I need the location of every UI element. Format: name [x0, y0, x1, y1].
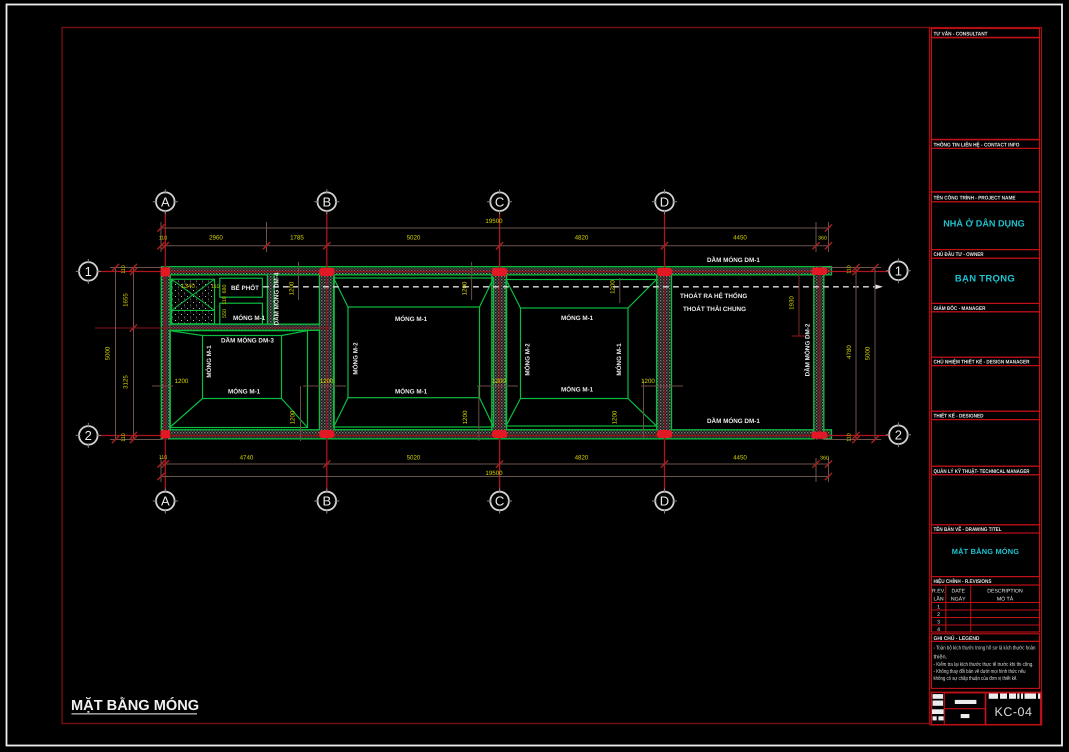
svg-text:110: 110	[211, 284, 220, 290]
svg-text:1200: 1200	[610, 280, 617, 294]
svg-text:TÊN CÔNG TRÌNH - PROJECT NAME: TÊN CÔNG TRÌNH - PROJECT NAME	[934, 195, 1016, 202]
svg-text:CHỦ ĐẦU TƯ - OWNER: CHỦ ĐẦU TƯ - OWNER	[934, 251, 984, 258]
svg-text:- Toàn bộ kích thước trong hồ: - Toàn bộ kích thước trong hồ sơ là kích…	[934, 645, 1036, 652]
svg-text:1200: 1200	[462, 281, 469, 295]
svg-text:19500: 19500	[485, 218, 503, 225]
svg-text:R.EV.: R.EV.	[932, 589, 945, 595]
svg-text:1200: 1200	[175, 378, 189, 385]
svg-text:MÓNG M-1: MÓNG M-1	[561, 314, 594, 322]
svg-text:BỂ PHỐT: BỂ PHỐT	[231, 284, 259, 292]
svg-text:110: 110	[121, 433, 127, 442]
svg-text:MẶT BẰNG MÓNG: MẶT BẰNG MÓNG	[71, 696, 199, 714]
svg-text:MÓNG M-1: MÓNG M-1	[228, 388, 261, 396]
svg-text:1655: 1655	[123, 293, 130, 307]
svg-text:TÊN BẢN VẼ - DRAWING TITEL: TÊN BẢN VẼ - DRAWING TITEL	[934, 526, 1003, 533]
svg-text:A: A	[161, 194, 170, 209]
svg-text:5000: 5000	[865, 346, 872, 360]
svg-text:4450: 4450	[733, 455, 747, 462]
svg-text:C: C	[495, 494, 504, 509]
svg-text:110: 110	[121, 265, 127, 274]
svg-text:1200: 1200	[641, 378, 655, 385]
svg-text:4740: 4740	[240, 455, 254, 462]
svg-text:DESCRIPTION: DESCRIPTION	[987, 589, 1023, 595]
svg-text:4450: 4450	[733, 234, 747, 241]
svg-text:1200: 1200	[612, 410, 619, 424]
svg-text:2: 2	[937, 612, 940, 618]
svg-text:110: 110	[847, 433, 853, 442]
svg-text:1340: 1340	[181, 283, 195, 290]
svg-text:1930: 1930	[789, 296, 796, 310]
svg-text:1785: 1785	[290, 234, 304, 241]
svg-text:- Không thay đổi bản vẽ dưới m: - Không thay đổi bản vẽ dưới mọi hình th…	[934, 668, 1026, 675]
svg-text:THIẾT KẾ - DESIGNED: THIẾT KẾ - DESIGNED	[934, 413, 984, 420]
svg-text:NGÀY: NGÀY	[951, 596, 966, 603]
svg-text:DẦM MÓNG DM-4: DẦM MÓNG DM-4	[273, 272, 281, 325]
svg-text:DẦM MÓNG DM-1: DẦM MÓNG DM-1	[707, 417, 760, 425]
svg-text:DẦM MÓNG DM-3: DẦM MÓNG DM-3	[221, 337, 274, 345]
svg-text:CHỦ NHIỆM THIẾT KẾ - DESIGN MA: CHỦ NHIỆM THIẾT KẾ - DESIGN MANAGER	[934, 359, 1030, 366]
svg-text:B: B	[322, 494, 331, 509]
svg-text:1200: 1200	[492, 378, 506, 385]
svg-text:không có sự chấp thuận của đơn: không có sự chấp thuận của đơn vị thiết …	[934, 675, 1018, 682]
svg-text:2: 2	[895, 427, 902, 442]
svg-text:MÓNG M-1: MÓNG M-1	[561, 386, 594, 394]
svg-text:4820: 4820	[575, 455, 589, 462]
svg-text:DATE: DATE	[951, 589, 965, 595]
svg-text:DẦM MÓNG DM-1: DẦM MÓNG DM-1	[707, 256, 760, 264]
svg-text:HIỆU CHỈNH - R.EVISIONS: HIỆU CHỈNH - R.EVISIONS	[934, 578, 992, 585]
svg-text:NHÀ Ở DÂN DỤNG: NHÀ Ở DÂN DỤNG	[943, 218, 1025, 229]
svg-text:1: 1	[895, 263, 902, 278]
svg-text:THÔNG TIN LIÊN HỆ - CONTACT IN: THÔNG TIN LIÊN HỆ - CONTACT INFO	[934, 141, 1020, 148]
svg-text:110: 110	[847, 265, 853, 274]
svg-text:4820: 4820	[575, 234, 589, 241]
svg-text:MÓNG M-1: MÓNG M-1	[395, 315, 428, 323]
svg-text:110: 110	[159, 455, 168, 461]
svg-text:THOÁT RA HỆ THỐNG: THOÁT RA HỆ THỐNG	[680, 292, 747, 300]
svg-text:GHI CHÚ - LEGEND: GHI CHÚ - LEGEND	[934, 635, 980, 642]
svg-text:LẦN: LẦN	[934, 596, 944, 603]
svg-text:1200: 1200	[320, 378, 334, 385]
svg-text:D: D	[660, 194, 669, 209]
svg-text:1200: 1200	[462, 410, 469, 424]
svg-text:- Kiểm tra lại kích thước thực: - Kiểm tra lại kích thước thực tế trước …	[934, 661, 1034, 668]
svg-text:D: D	[660, 494, 669, 509]
svg-text:TƯ VẤN - CONSULTANT: TƯ VẤN - CONSULTANT	[934, 30, 989, 37]
svg-text:360: 360	[818, 235, 827, 241]
svg-text:KC-04: KC-04	[995, 705, 1033, 719]
svg-text:4: 4	[937, 627, 940, 633]
svg-text:MÔ TẢ: MÔ TẢ	[997, 596, 1014, 603]
svg-text:MÓNG M-1: MÓNG M-1	[615, 343, 623, 376]
svg-text:5020: 5020	[407, 455, 421, 462]
svg-text:THOÁT THẢI CHUNG: THOÁT THẢI CHUNG	[683, 305, 746, 313]
svg-text:MÓNG M-1: MÓNG M-1	[395, 388, 428, 396]
svg-text:C: C	[495, 194, 504, 209]
svg-text:360: 360	[820, 456, 829, 462]
svg-text:2: 2	[85, 428, 92, 443]
svg-text:B: B	[322, 194, 331, 209]
svg-text:2960: 2960	[209, 234, 223, 241]
svg-text:QUẢN LÝ KỸ THUẬT- TECHNICAL MA: QUẢN LÝ KỸ THUẬT- TECHNICAL MANAGER	[934, 468, 1030, 475]
svg-text:BẠN TRỌNG: BẠN TRỌNG	[955, 274, 1015, 285]
svg-text:1200: 1200	[289, 281, 296, 295]
svg-text:GIÁM ĐỐC - MANAGER: GIÁM ĐỐC - MANAGER	[934, 305, 986, 312]
svg-text:MẶT BẰNG MÓNG: MẶT BẰNG MÓNG	[952, 547, 1020, 556]
svg-text:MÓNG M-2: MÓNG M-2	[352, 342, 360, 375]
svg-text:5020: 5020	[407, 234, 421, 241]
svg-text:110: 110	[159, 235, 168, 241]
svg-text:1200: 1200	[290, 410, 297, 424]
svg-text:3: 3	[937, 619, 940, 625]
svg-text:680: 680	[222, 285, 228, 294]
svg-text:5000: 5000	[105, 346, 112, 360]
svg-text:MÓNG M-1: MÓNG M-1	[205, 345, 213, 378]
svg-text:A: A	[161, 494, 170, 509]
svg-text:550: 550	[222, 309, 228, 318]
svg-text:19500: 19500	[485, 470, 503, 477]
svg-text:1: 1	[937, 604, 940, 610]
svg-text:MÓNG M-2: MÓNG M-2	[524, 343, 532, 376]
svg-text:3125: 3125	[123, 375, 130, 389]
svg-text:DẦM MÓNG DM-2: DẦM MÓNG DM-2	[804, 323, 812, 376]
svg-text:1: 1	[85, 264, 92, 279]
svg-text:thiện.: thiện.	[934, 654, 948, 661]
svg-text:MÓNG M-1: MÓNG M-1	[233, 314, 266, 322]
svg-text:4780: 4780	[846, 345, 853, 359]
svg-text:110: 110	[222, 296, 228, 305]
